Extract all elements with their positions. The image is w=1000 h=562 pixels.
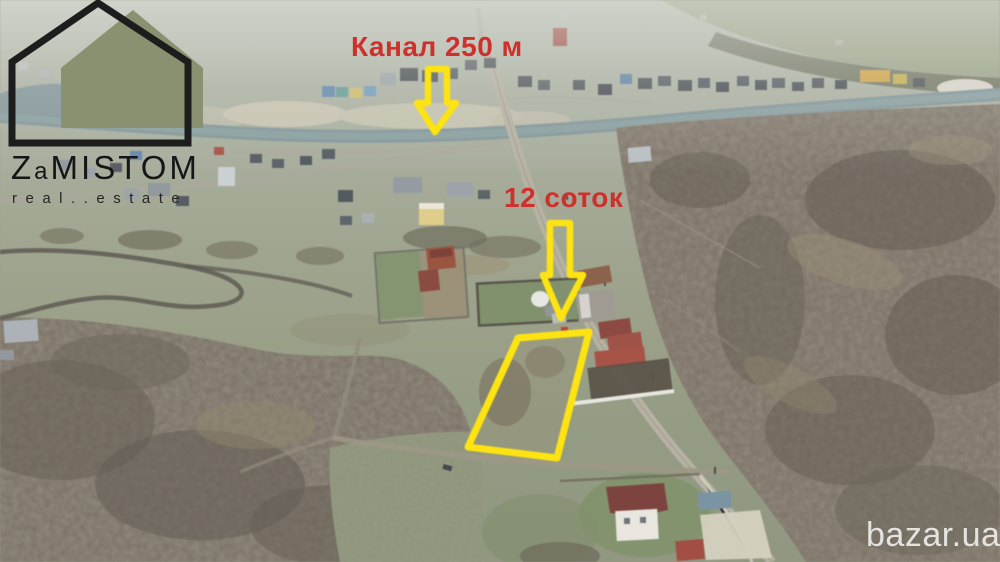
house-logo-icon (0, 0, 240, 150)
logo-brand-text: ZaMISTOM (11, 151, 200, 184)
logo-zamistom: ZaMISTOM real..estate (0, 0, 240, 215)
plot-area-label: 12 соток (504, 184, 623, 212)
aerial-photo-listing: Канал 250 м 12 соток ZaMISTOM real..esta… (0, 0, 1000, 562)
bazar-watermark: bazar.ua (866, 518, 1000, 552)
canal-distance-label: Канал 250 м (351, 33, 523, 61)
logo-tagline: real..estate (12, 191, 188, 206)
